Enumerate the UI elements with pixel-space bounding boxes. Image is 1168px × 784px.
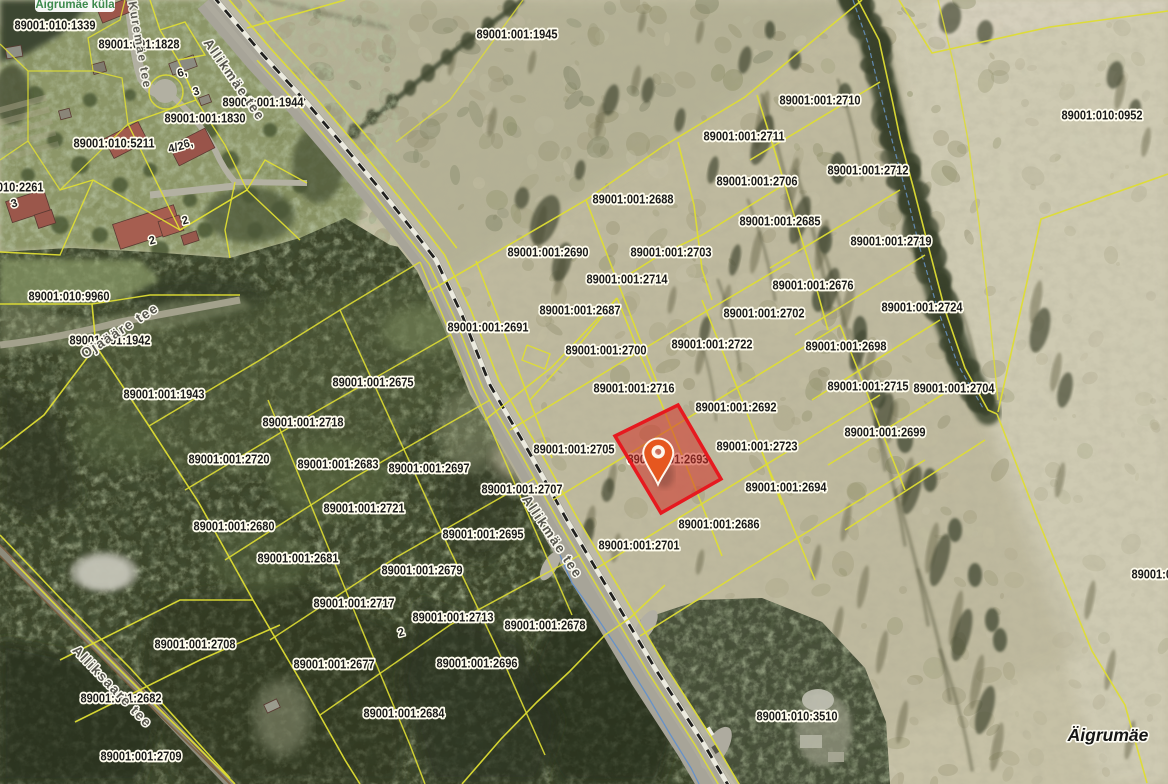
- svg-text:89001:001:2714: 89001:001:2714: [587, 272, 669, 287]
- svg-text:89001:001:2718: 89001:001:2718: [263, 415, 344, 430]
- svg-text:89001:001:2676: 89001:001:2676: [773, 278, 854, 293]
- svg-text:89001:001:2716: 89001:001:2716: [594, 381, 675, 396]
- svg-text:89001:001:1943: 89001:001:1943: [124, 387, 205, 402]
- svg-text:89001:001:2711: 89001:001:2711: [704, 129, 785, 144]
- svg-text:89001:001:2694: 89001:001:2694: [746, 480, 828, 495]
- svg-text:89001:001:2675: 89001:001:2675: [333, 375, 414, 390]
- svg-text:89001:001:2719: 89001:001:2719: [851, 234, 932, 249]
- svg-text:89001:010:5211: 89001:010:5211: [74, 136, 155, 151]
- svg-text:89001:001:2681: 89001:001:2681: [258, 551, 339, 566]
- svg-text:89001:001:2685: 89001:001:2685: [740, 214, 821, 229]
- svg-text:89001:001:2691: 89001:001:2691: [448, 320, 529, 335]
- svg-text:89001:001:2709: 89001:001:2709: [101, 749, 182, 764]
- svg-text:89001:001:2715: 89001:001:2715: [828, 379, 909, 394]
- svg-text:89001:001:2708: 89001:001:2708: [155, 637, 236, 652]
- svg-text:89001:001:2717: 89001:001:2717: [314, 596, 395, 611]
- svg-text:89001:001:2696: 89001:001:2696: [437, 656, 518, 671]
- svg-text:89001:001:2704: 89001:001:2704: [914, 381, 996, 396]
- svg-text:89001:001:2703: 89001:001:2703: [631, 245, 712, 260]
- svg-text:Äigrumäe: Äigrumäe: [1067, 725, 1149, 745]
- svg-text:89001:001:2702: 89001:001:2702: [724, 306, 805, 321]
- svg-text:89001:001:2707: 89001:001:2707: [482, 482, 563, 497]
- svg-text:89001:001:2686: 89001:001:2686: [679, 517, 760, 532]
- svg-text:89001:010:0952: 89001:010:0952: [1062, 108, 1143, 123]
- svg-text:89001:001:2722: 89001:001:2722: [672, 337, 753, 352]
- svg-text:89001:001:2705: 89001:001:2705: [534, 442, 615, 457]
- svg-text:89001:001:1830: 89001:001:1830: [165, 111, 246, 126]
- svg-text:89001:001:2721: 89001:001:2721: [324, 501, 405, 516]
- svg-text:89001:001:2678: 89001:001:2678: [505, 618, 586, 633]
- svg-text:89001:001:2706: 89001:001:2706: [717, 174, 798, 189]
- svg-text:89001:001:2710: 89001:001:2710: [780, 93, 861, 108]
- svg-text:89001:001:2724: 89001:001:2724: [882, 300, 964, 315]
- svg-text:89001:001:2723: 89001:001:2723: [717, 439, 798, 454]
- svg-text:89001:001:2690: 89001:001:2690: [508, 245, 589, 260]
- svg-text:89001:001:2699: 89001:001:2699: [845, 425, 926, 440]
- svg-text:89001:001:2697: 89001:001:2697: [389, 461, 470, 476]
- svg-text:89001:001:2677: 89001:001:2677: [294, 657, 375, 672]
- svg-text:89001:001:2688: 89001:001:2688: [593, 192, 674, 207]
- svg-text:89001:001:2720: 89001:001:2720: [189, 452, 270, 467]
- svg-text:89001:001:2684: 89001:001:2684: [364, 706, 446, 721]
- svg-text:89001:010:0974: 89001:010:0974: [1132, 567, 1168, 582]
- svg-text:89001:001:2683: 89001:001:2683: [298, 457, 379, 472]
- svg-text:89001:001:2687: 89001:001:2687: [540, 303, 621, 318]
- svg-text:89001:001:2679: 89001:001:2679: [382, 563, 463, 578]
- svg-text:89001:001:2698: 89001:001:2698: [806, 339, 887, 354]
- svg-text:89001:001:2692: 89001:001:2692: [696, 400, 777, 415]
- svg-text:89001:001:2695: 89001:001:2695: [443, 527, 524, 542]
- svg-text:89001:001:1945: 89001:001:1945: [477, 27, 558, 42]
- svg-text:Äigrumäe küla: Äigrumäe küla: [35, 0, 115, 11]
- svg-text:89001:010:1339: 89001:010:1339: [15, 18, 96, 33]
- svg-text:89001:010:2261: 89001:010:2261: [0, 180, 44, 195]
- svg-text:89001:001:2712: 89001:001:2712: [828, 163, 909, 178]
- svg-text:89001:001:2680: 89001:001:2680: [194, 519, 275, 534]
- svg-text:89001:010:3510: 89001:010:3510: [757, 709, 838, 724]
- svg-text:89001:001:2713: 89001:001:2713: [413, 610, 494, 625]
- svg-text:89001:001:2700: 89001:001:2700: [566, 343, 647, 358]
- svg-text:89001:010:9960: 89001:010:9960: [29, 289, 110, 304]
- svg-text:89001:001:2701: 89001:001:2701: [599, 538, 680, 553]
